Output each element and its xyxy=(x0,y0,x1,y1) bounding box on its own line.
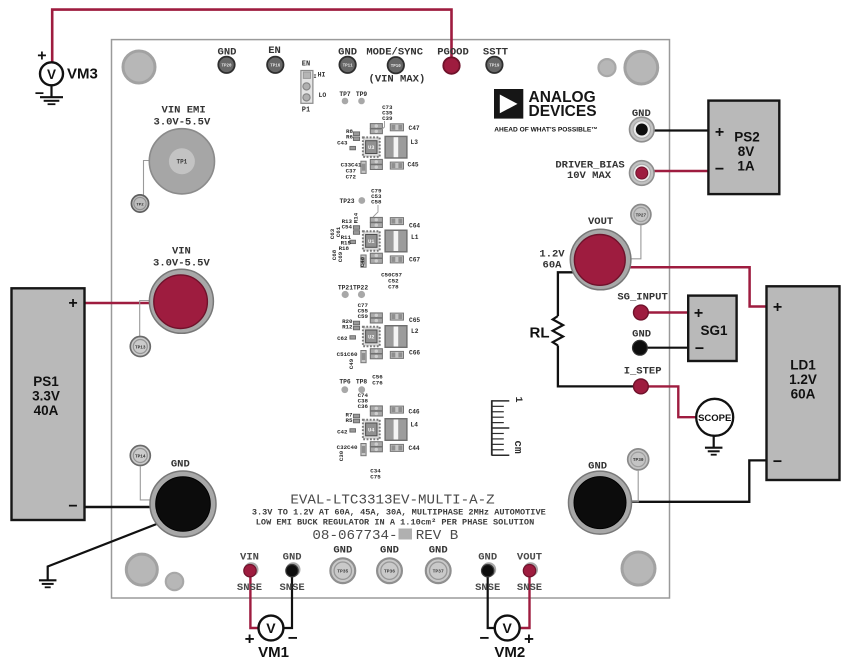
svg-text:GND: GND xyxy=(333,545,352,557)
svg-text:LO: LO xyxy=(318,92,326,99)
svg-text:1: 1 xyxy=(512,396,523,402)
svg-text:TP14: TP14 xyxy=(135,454,146,459)
svg-text:C46: C46 xyxy=(409,409,420,416)
svg-text:+: + xyxy=(694,305,703,322)
svg-text:LD1: LD1 xyxy=(790,358,816,373)
svg-text:3.0V-5.5V: 3.0V-5.5V xyxy=(154,117,211,129)
svg-text:U3: U3 xyxy=(368,145,374,151)
svg-text:08-067734-: 08-067734- xyxy=(312,528,397,544)
svg-text:C49: C49 xyxy=(348,358,355,369)
svg-text:C44: C44 xyxy=(409,445,420,452)
svg-text:40A: 40A xyxy=(34,403,59,418)
svg-text:C69: C69 xyxy=(337,251,344,262)
svg-text:GND: GND xyxy=(380,545,399,557)
svg-text:TP20: TP20 xyxy=(221,64,232,68)
svg-text:DEVICES: DEVICES xyxy=(529,103,597,120)
svg-text:C42: C42 xyxy=(337,429,348,436)
svg-text:REV B: REV B xyxy=(416,528,459,544)
svg-text:LOW EMI BUCK REGULATOR IN A 1.: LOW EMI BUCK REGULATOR IN A 1.10cm² PER … xyxy=(256,518,534,528)
svg-text:60A: 60A xyxy=(791,387,816,402)
svg-text:TP30: TP30 xyxy=(633,458,644,463)
svg-text:C62: C62 xyxy=(337,335,348,342)
svg-text:TP2: TP2 xyxy=(136,203,144,207)
svg-text:1.2V: 1.2V xyxy=(789,372,817,387)
svg-text:GND: GND xyxy=(283,552,302,564)
svg-text:+: + xyxy=(37,48,46,65)
svg-text:60A: 60A xyxy=(543,260,563,272)
svg-text:EVAL-LTC3313EV-MULTI-A-Z: EVAL-LTC3313EV-MULTI-A-Z xyxy=(290,493,494,509)
svg-text:GND: GND xyxy=(632,329,651,341)
svg-text:VIN: VIN xyxy=(240,552,259,564)
svg-text:SCOPE: SCOPE xyxy=(698,413,731,424)
svg-text:I_STEP: I_STEP xyxy=(624,366,662,378)
svg-text:C36: C36 xyxy=(358,403,369,410)
svg-text:+: + xyxy=(715,124,724,141)
svg-text:SG_INPUT: SG_INPUT xyxy=(617,292,667,304)
svg-text:R18: R18 xyxy=(339,245,350,252)
svg-text:−: − xyxy=(715,161,724,178)
svg-text:R14: R14 xyxy=(353,212,360,223)
svg-text:R12: R12 xyxy=(342,324,353,331)
svg-text:SNSE: SNSE xyxy=(517,582,542,594)
svg-text:+: + xyxy=(245,630,255,649)
svg-text:C65: C65 xyxy=(409,317,420,324)
svg-text:−: − xyxy=(35,86,44,103)
svg-text:SNSE: SNSE xyxy=(237,582,262,594)
svg-text:TP1: TP1 xyxy=(176,159,187,166)
svg-text:GND: GND xyxy=(171,459,190,471)
svg-text:3.3V: 3.3V xyxy=(32,389,60,404)
svg-text:C58: C58 xyxy=(371,199,382,206)
svg-text:U1: U1 xyxy=(368,239,374,245)
svg-text:TP6: TP6 xyxy=(339,379,351,386)
svg-text:VM1: VM1 xyxy=(258,644,289,661)
svg-text:U2: U2 xyxy=(368,334,374,340)
svg-text:GND: GND xyxy=(429,545,448,557)
svg-text:C30: C30 xyxy=(338,450,345,461)
svg-text:1A: 1A xyxy=(737,159,755,174)
svg-text:C32C40: C32C40 xyxy=(337,444,358,451)
svg-text:VIN: VIN xyxy=(172,246,191,258)
svg-text:SG1: SG1 xyxy=(700,323,728,338)
svg-text:PS1: PS1 xyxy=(33,374,59,389)
svg-text:TP19: TP19 xyxy=(489,64,500,68)
svg-text:L3: L3 xyxy=(411,139,419,146)
svg-text:P1: P1 xyxy=(302,107,310,115)
svg-text:R5: R5 xyxy=(346,417,353,424)
svg-text:EN: EN xyxy=(302,61,310,69)
svg-text:C75: C75 xyxy=(370,474,381,481)
svg-text:TP16: TP16 xyxy=(270,64,281,68)
svg-text:SNSE: SNSE xyxy=(475,582,500,594)
svg-text:TP10: TP10 xyxy=(391,65,402,69)
svg-text:VIN EMI: VIN EMI xyxy=(162,105,206,117)
svg-text:C59: C59 xyxy=(358,313,369,320)
svg-text:C43: C43 xyxy=(337,140,348,147)
svg-text:TP21TP22: TP21TP22 xyxy=(338,285,368,292)
svg-text:V: V xyxy=(503,620,513,636)
svg-text:EN: EN xyxy=(268,45,281,57)
svg-text:U4: U4 xyxy=(368,427,375,433)
svg-text:C78: C78 xyxy=(388,284,399,291)
svg-text:TP9: TP9 xyxy=(356,91,368,98)
svg-text:RL: RL xyxy=(530,325,550,342)
svg-text:L1: L1 xyxy=(411,234,419,241)
svg-text:TP36: TP36 xyxy=(384,569,395,575)
svg-text:C47: C47 xyxy=(409,125,420,132)
svg-text:C64: C64 xyxy=(409,223,420,230)
svg-text:L2: L2 xyxy=(411,328,419,335)
svg-text:−: − xyxy=(480,629,490,648)
svg-text:C51C60: C51C60 xyxy=(337,351,358,358)
svg-text:AHEAD OF WHAT’S POSSIBLE™: AHEAD OF WHAT’S POSSIBLE™ xyxy=(494,126,598,133)
svg-text:C39: C39 xyxy=(382,115,393,122)
svg-text:3.3V TO 1.2V AT 60A, 45A, 30A,: 3.3V TO 1.2V AT 60A, 45A, 30A, MULTIPHAS… xyxy=(252,508,546,518)
svg-text:TP13: TP13 xyxy=(135,345,146,350)
svg-text:HI: HI xyxy=(318,72,326,79)
svg-text:C45: C45 xyxy=(408,162,419,169)
svg-text:−: − xyxy=(773,454,782,471)
svg-text:C67: C67 xyxy=(409,257,420,264)
svg-text:GND: GND xyxy=(478,552,497,564)
svg-text:10V MAX: 10V MAX xyxy=(567,170,612,182)
svg-text:VM3: VM3 xyxy=(67,66,98,83)
svg-text:C66: C66 xyxy=(409,350,420,357)
svg-text:TP37: TP37 xyxy=(433,569,444,575)
svg-text:cm: cm xyxy=(511,440,523,454)
svg-text:PS2: PS2 xyxy=(734,130,760,145)
svg-text:(VIN MAX): (VIN MAX) xyxy=(369,74,426,86)
svg-text:−: − xyxy=(695,341,704,358)
svg-text:TP8: TP8 xyxy=(356,379,368,386)
svg-text:+: + xyxy=(524,630,534,649)
svg-text:C54: C54 xyxy=(342,224,353,231)
svg-text:TP11: TP11 xyxy=(343,64,354,68)
svg-text:C72: C72 xyxy=(346,174,357,181)
svg-text:SNSE: SNSE xyxy=(279,582,304,594)
svg-text:C48: C48 xyxy=(359,256,366,267)
svg-text:V: V xyxy=(47,67,56,82)
svg-text:TP7: TP7 xyxy=(339,91,351,98)
svg-text:−: − xyxy=(288,629,298,648)
svg-text:TP35: TP35 xyxy=(337,569,348,575)
svg-text:8V: 8V xyxy=(738,144,755,159)
svg-text:+: + xyxy=(68,295,77,312)
svg-text:VOUT: VOUT xyxy=(588,216,613,228)
svg-text:I: I xyxy=(313,74,316,80)
svg-text:TP23: TP23 xyxy=(339,198,354,205)
svg-text:+: + xyxy=(773,299,782,316)
svg-text:L4: L4 xyxy=(411,422,419,429)
svg-text:3.0V-5.5V: 3.0V-5.5V xyxy=(153,258,210,270)
svg-text:V: V xyxy=(266,620,276,636)
svg-text:−: − xyxy=(68,498,77,515)
svg-text:VM2: VM2 xyxy=(494,644,525,661)
svg-text:VOUT: VOUT xyxy=(517,552,542,564)
svg-text:TP27: TP27 xyxy=(636,213,647,218)
svg-text:C76: C76 xyxy=(372,380,383,387)
